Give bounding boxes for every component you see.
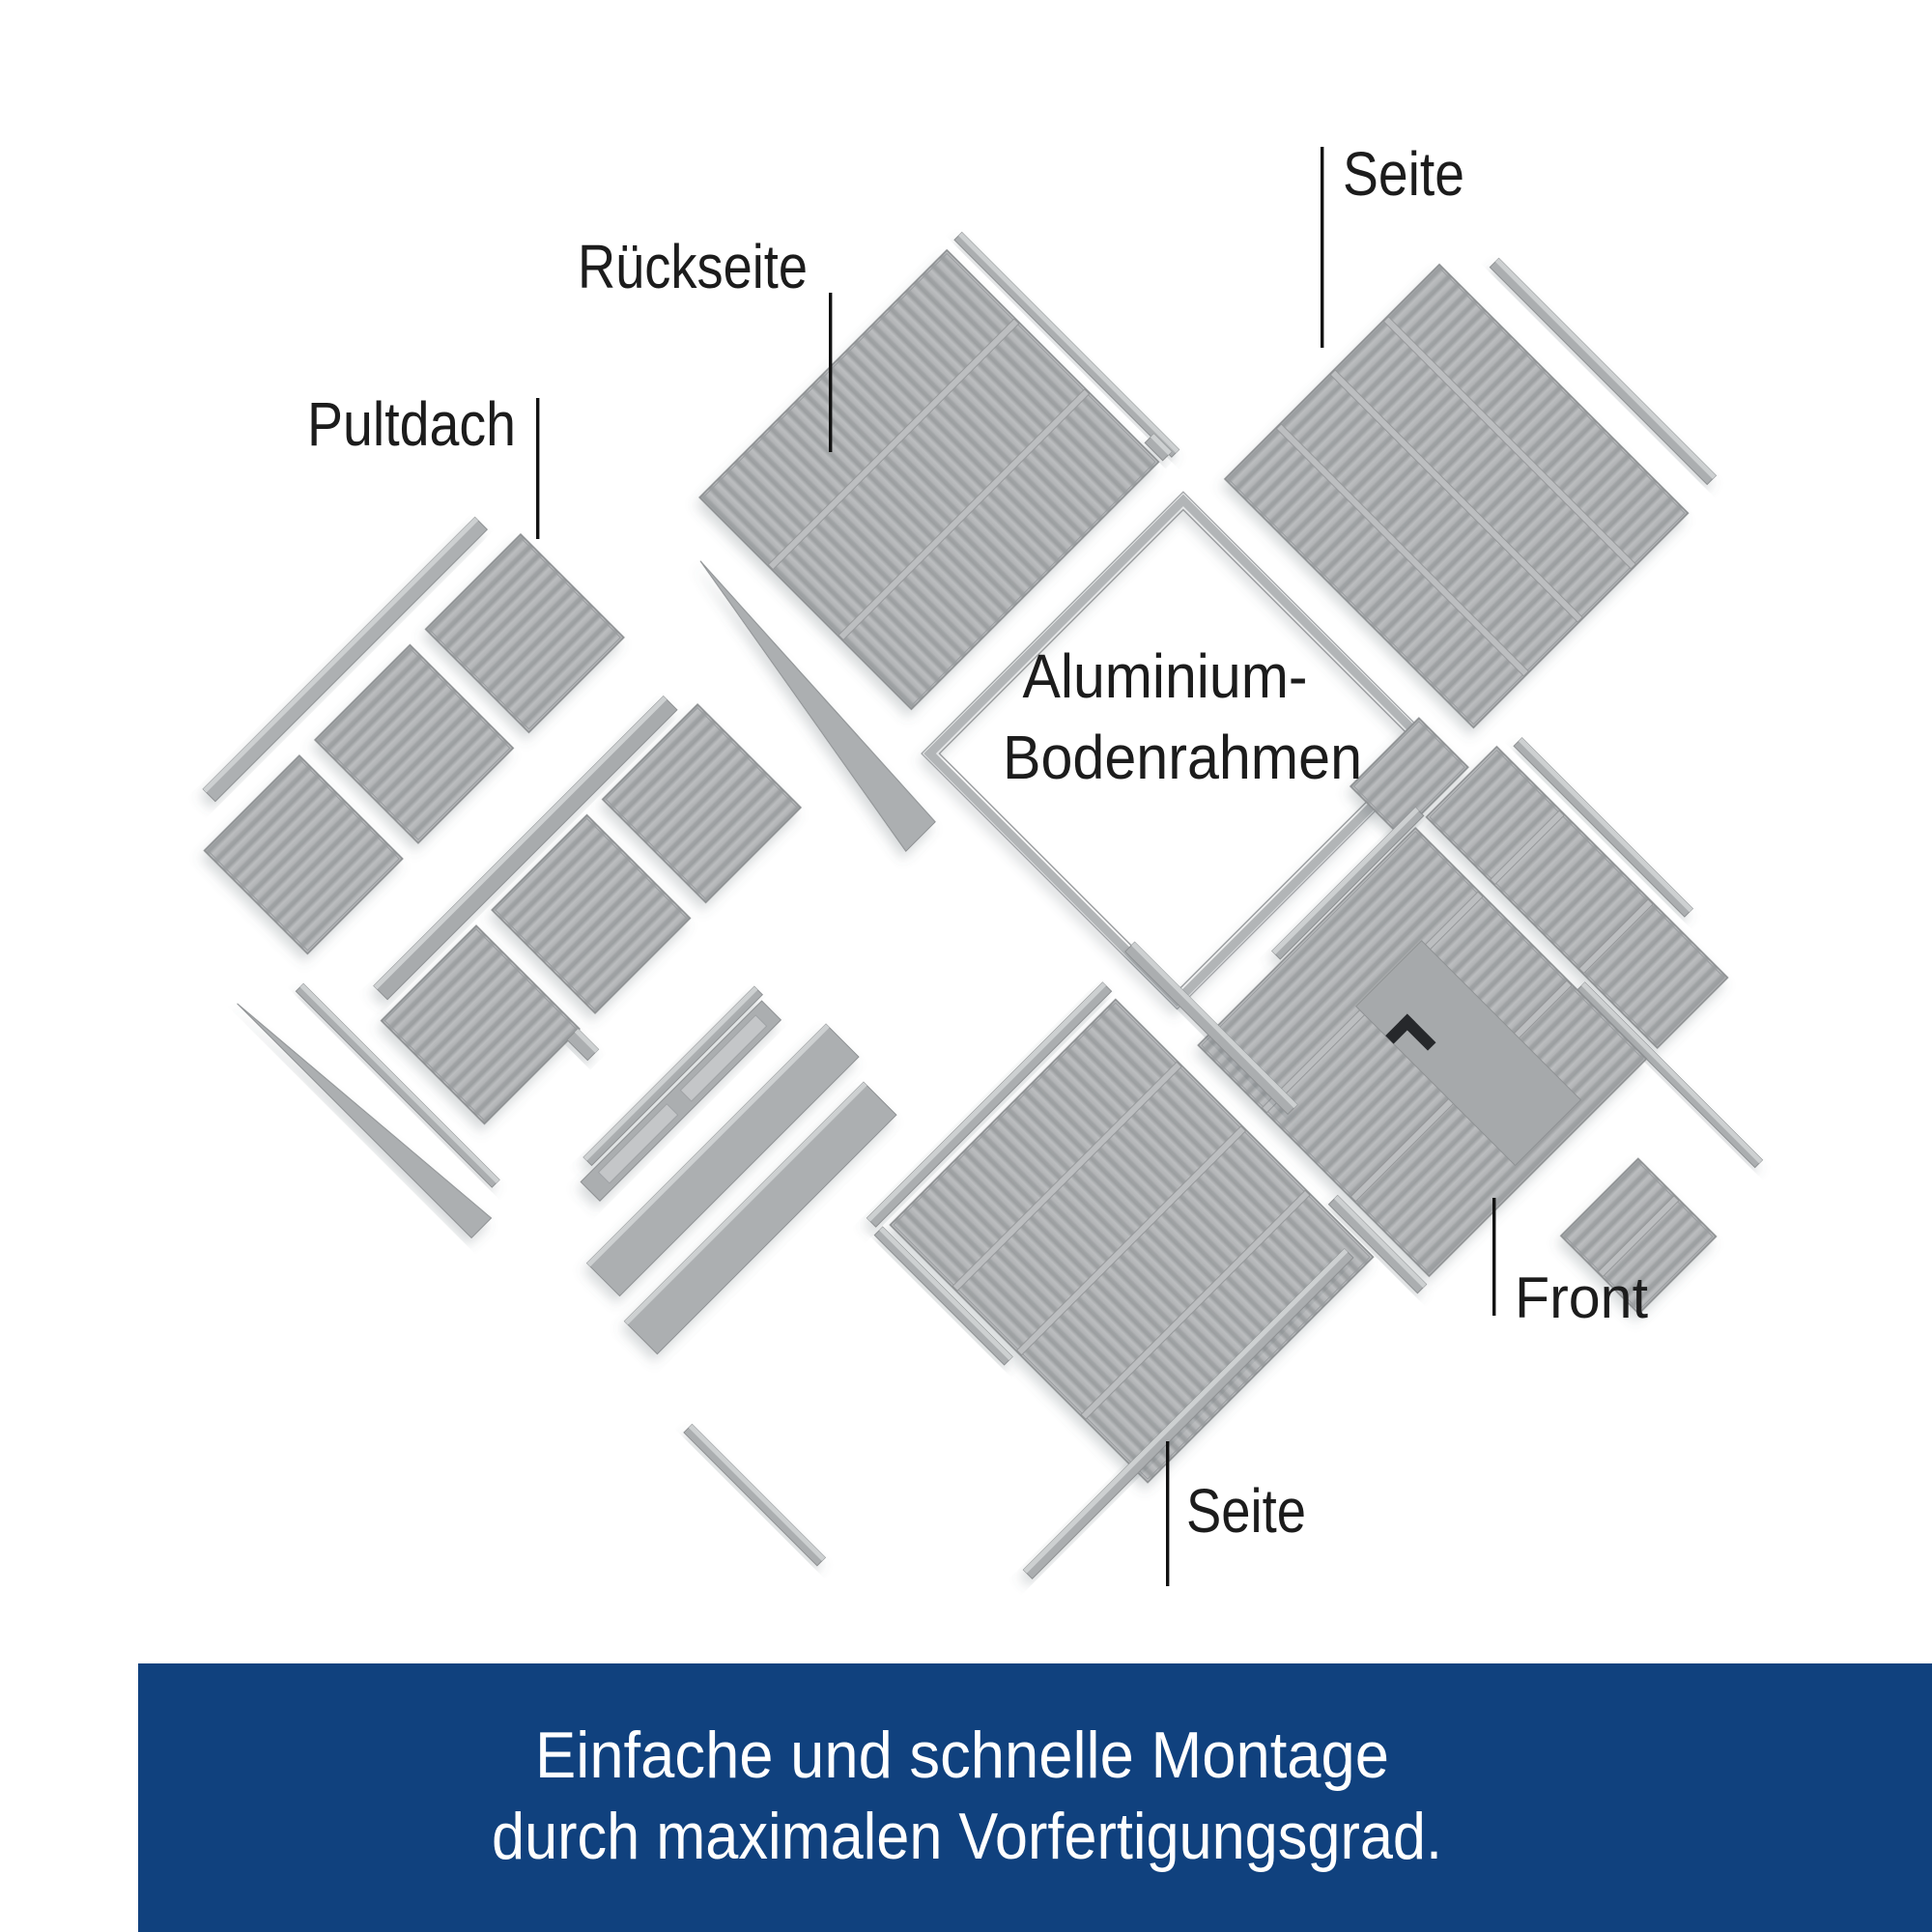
svg-text:Seite: Seite: [1343, 139, 1464, 209]
svg-text:Bodenrahmen: Bodenrahmen: [1003, 723, 1362, 792]
svg-text:durch maximalen Vorfertigungsg: durch maximalen Vorfertigungsgrad.: [492, 1800, 1442, 1873]
svg-text:Seite: Seite: [1186, 1476, 1306, 1546]
svg-text:Rückseite: Rückseite: [578, 232, 808, 301]
svg-text:Aluminium-: Aluminium-: [1023, 641, 1308, 711]
svg-text:Pultdach: Pultdach: [307, 389, 516, 459]
svg-text:Front: Front: [1515, 1265, 1648, 1330]
svg-text:Einfache und schnelle Montage: Einfache und schnelle Montage: [535, 1719, 1389, 1792]
